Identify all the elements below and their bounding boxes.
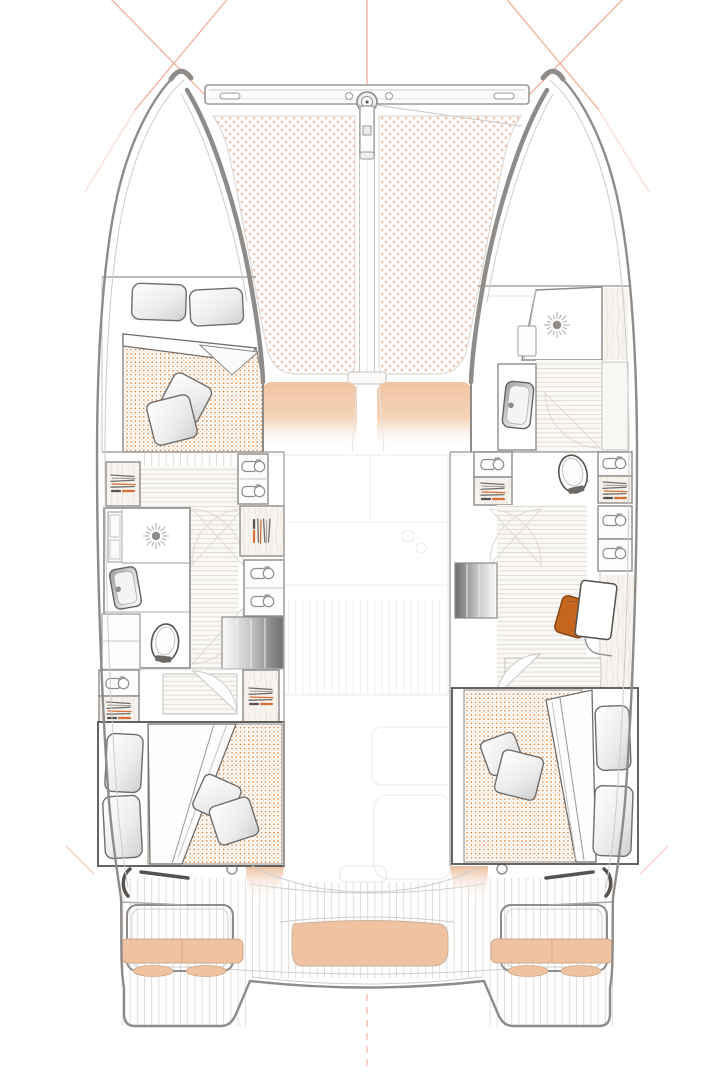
ghost-saloon-outline xyxy=(284,455,468,882)
ghost-locker xyxy=(340,866,386,882)
floor-plan-svg xyxy=(0,0,720,1080)
port-step-pad xyxy=(133,966,173,977)
port-shroud-line xyxy=(85,110,135,192)
side-cabinet xyxy=(602,362,628,450)
shelf-roll-icon xyxy=(251,567,274,579)
port-aft-cabin xyxy=(98,669,284,866)
shower-step xyxy=(518,326,536,356)
floor-plan-canvas xyxy=(0,0,720,1080)
starboard-hull-interior xyxy=(450,286,638,866)
sink-icon xyxy=(502,381,535,430)
ghost-galley-sink-icon xyxy=(402,530,414,542)
ghost-cockpit-seat xyxy=(374,795,452,879)
outboard-shelf xyxy=(604,288,628,360)
pillow xyxy=(593,785,633,856)
starboard-shroud-line xyxy=(599,110,649,192)
beam-hole xyxy=(346,93,353,100)
starboard-companionway-stairs xyxy=(455,563,497,618)
beam-hole xyxy=(386,93,393,100)
sunburst-icon xyxy=(143,523,169,549)
shelf-roll-icon xyxy=(481,458,504,470)
shelf-roll-icon xyxy=(242,485,265,497)
throw-pillow xyxy=(145,393,198,446)
forward-cockpit-cushion-port xyxy=(262,382,357,448)
port-hull-interior xyxy=(98,277,284,866)
bed-foot-floor xyxy=(140,452,240,466)
hanging-locker xyxy=(240,506,284,556)
shelf-roll-icon xyxy=(106,677,129,689)
shelf-roll-icon xyxy=(251,595,274,607)
desk-top xyxy=(575,580,618,640)
aft-cockpit xyxy=(118,864,616,1026)
hanging-locker xyxy=(474,477,512,505)
port-companionway-stairs xyxy=(222,617,283,669)
port-trampoline xyxy=(213,116,355,374)
port-bow-cap xyxy=(171,71,191,79)
starboard-tiller-bar xyxy=(546,872,593,878)
starboard-trampoline xyxy=(379,116,521,374)
pillow xyxy=(595,705,631,770)
port-floor xyxy=(140,466,240,508)
forward-cockpit-cushion-starboard xyxy=(377,382,472,448)
pillow xyxy=(189,288,244,327)
starboard-step-pad xyxy=(561,966,601,977)
toilet-icon xyxy=(555,453,590,496)
beam-slot xyxy=(494,93,514,99)
windlass-base xyxy=(360,152,374,159)
sunburst-icon xyxy=(544,312,570,338)
port-step-pad xyxy=(186,966,226,977)
ghost-galley-sink-icon xyxy=(416,543,426,553)
starboard-step-pad xyxy=(508,966,548,977)
bowsprit-pin xyxy=(365,100,368,103)
desk xyxy=(575,580,618,640)
aft-rig-mark xyxy=(66,846,94,874)
port-tiller-bar xyxy=(141,872,188,878)
shelf-roll-icon xyxy=(603,547,626,559)
mast-step xyxy=(348,372,386,384)
starboard-bow-cap xyxy=(543,71,563,79)
beam-slot xyxy=(220,93,240,99)
pillow xyxy=(131,283,186,321)
ghost-floor-planks xyxy=(287,600,445,694)
starboard-winch-icon xyxy=(497,864,507,874)
shelf-roll-icon xyxy=(603,514,626,526)
port-forward-cabin xyxy=(123,283,263,466)
hanging-locker xyxy=(99,696,139,724)
pillow xyxy=(105,733,144,793)
windlass-gypsy xyxy=(363,126,371,135)
transom-line xyxy=(252,977,482,984)
shelf-roll-icon xyxy=(603,457,626,469)
ghost-saloon-lines xyxy=(284,455,448,585)
aft-rig-mark xyxy=(640,846,668,874)
aft-bench-cushion xyxy=(292,921,448,967)
hanging-locker xyxy=(243,670,279,722)
shelf-roll-icon xyxy=(242,460,265,472)
